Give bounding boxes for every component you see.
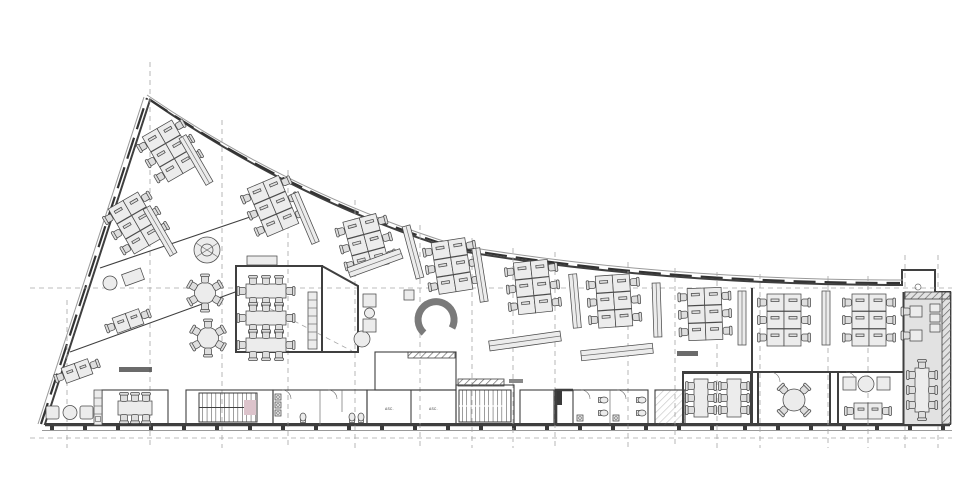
conference-cabinet: [308, 292, 317, 349]
equipment-mark: [509, 379, 523, 383]
printer-station: [404, 290, 414, 300]
shelf-unit: [652, 283, 662, 337]
desk-cluster: [422, 236, 482, 296]
storage-unit: [843, 377, 856, 390]
office-desk-pair: [103, 305, 153, 336]
storage-round: [858, 376, 874, 392]
round-table-6: [189, 319, 226, 357]
office-round-table: [103, 276, 117, 290]
desk-cluster: [586, 273, 642, 329]
floor-plan-canvas: ASC. ASC.: [0, 0, 960, 500]
lounge-armchair: [80, 406, 93, 419]
coffee-table: [365, 308, 375, 318]
elevator-label-right: ASC.: [429, 407, 438, 411]
round-table-4: [777, 383, 812, 418]
annex-wall-right: [942, 292, 951, 424]
annex-table: [910, 330, 922, 341]
furniture: [46, 115, 940, 423]
elevator-label-left: ASC.: [385, 407, 394, 411]
vent-strip-1: [408, 352, 455, 358]
desk-cluster: [843, 294, 896, 346]
annex-table: [910, 306, 922, 317]
meeting-table: [686, 379, 717, 417]
office-desk-pair: [845, 403, 892, 419]
wc-center: [573, 390, 648, 425]
stair-landing-west: [244, 400, 256, 415]
sideboard: [247, 256, 277, 265]
low-shelf: [489, 331, 562, 351]
small-room-center: [520, 390, 554, 425]
shelf-unit: [822, 291, 830, 345]
column-marker: [915, 284, 921, 290]
lounge-table: [63, 406, 77, 420]
equipment-mark: [119, 367, 152, 372]
equipment-mark: [677, 351, 698, 356]
floor-plan-drawing: ASC. ASC.: [0, 0, 960, 500]
desk-cluster: [678, 287, 733, 341]
round-bench: [194, 237, 220, 263]
conference-table: [237, 276, 295, 307]
round-table-6: [186, 274, 223, 312]
desk-cluster: [758, 294, 811, 346]
side-table: [363, 294, 376, 307]
curved-sofa: [418, 302, 454, 333]
meeting-table: [118, 393, 152, 424]
storage-unit: [877, 377, 890, 390]
shelf-unit: [569, 274, 582, 328]
annex-cabinet: [930, 314, 940, 322]
conference-table: [237, 330, 295, 361]
meeting-table: [719, 379, 750, 417]
lounge-armchair: [46, 406, 59, 419]
lounge-chair: [354, 331, 370, 347]
side-table: [363, 319, 376, 332]
office-desk: [122, 268, 145, 286]
annex-cabinet: [930, 304, 940, 312]
annex-cabinet: [930, 324, 940, 332]
low-shelf: [581, 343, 654, 360]
shelf-unit: [738, 291, 746, 345]
conference-table: [237, 303, 295, 334]
vent-strip-2: [458, 379, 504, 386]
